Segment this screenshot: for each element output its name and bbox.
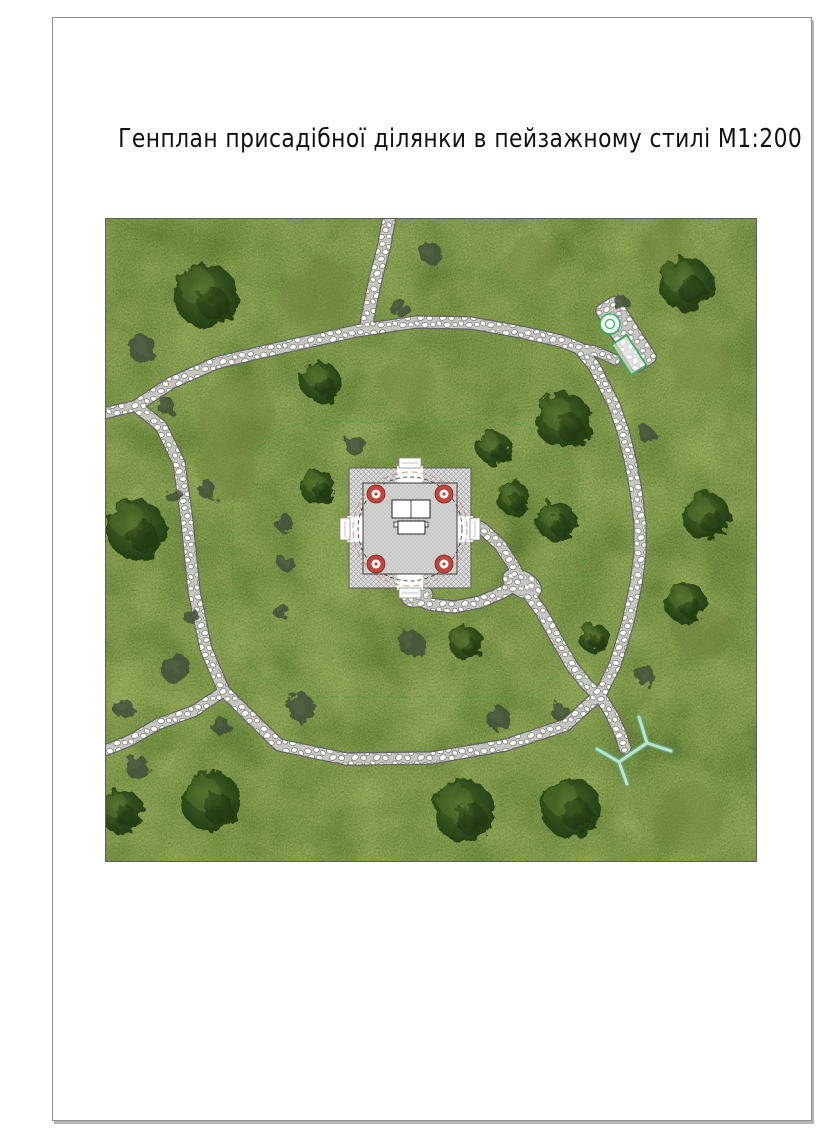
tree-canopy <box>449 626 483 660</box>
bush-canopy <box>552 704 570 722</box>
shrub-mass <box>671 331 731 391</box>
bush-canopy <box>212 717 230 735</box>
tree-canopy <box>579 623 609 653</box>
page-sheet: Генплан присадібної ділянки в пейзажному… <box>52 17 812 1121</box>
tree-canopy <box>682 492 730 540</box>
tree-canopy <box>174 264 238 328</box>
bush-canopy <box>487 707 511 731</box>
bush-canopy <box>398 630 424 656</box>
tree-canopy <box>301 362 341 402</box>
bush-canopy <box>161 654 191 684</box>
bush-canopy <box>129 335 157 363</box>
bush-canopy <box>287 694 315 722</box>
bush-canopy <box>278 555 294 571</box>
tree-canopy <box>536 501 576 541</box>
drawing-title: Генплан присадібної ділянки в пейзажному… <box>53 122 811 156</box>
tree-canopy <box>106 499 166 559</box>
bush-canopy <box>613 295 629 311</box>
tree-canopy <box>659 257 713 311</box>
shrub-mass <box>382 356 434 408</box>
tree-canopy <box>541 778 601 838</box>
tree-canopy <box>536 393 592 449</box>
shrub-mass <box>282 259 356 333</box>
genplan-svg <box>106 219 756 861</box>
shrub-mass <box>509 236 559 286</box>
tree-canopy <box>496 481 530 515</box>
bush-canopy <box>274 513 292 531</box>
shrub-mass <box>653 783 723 853</box>
bush-canopy <box>420 243 442 265</box>
bush-canopy <box>273 603 289 619</box>
tree-canopy <box>477 431 511 465</box>
tree-canopy <box>433 780 495 842</box>
gazebo <box>340 458 480 598</box>
tree-canopy <box>300 469 336 505</box>
bush-canopy <box>166 488 182 504</box>
bush-canopy <box>346 436 366 456</box>
bush-canopy <box>199 482 217 500</box>
bush-canopy <box>183 608 199 624</box>
bush-canopy <box>126 756 150 780</box>
bush-canopy <box>113 698 133 718</box>
bush-canopy <box>638 426 654 442</box>
genplan-figure <box>105 218 757 862</box>
bush-canopy <box>157 397 175 415</box>
drawing-title-text: Генплан присадібної ділянки в пейзажному… <box>118 122 802 156</box>
bush-canopy <box>389 298 407 316</box>
tree-canopy <box>665 582 707 624</box>
tree-canopy <box>181 771 241 831</box>
bush-canopy <box>636 666 656 686</box>
